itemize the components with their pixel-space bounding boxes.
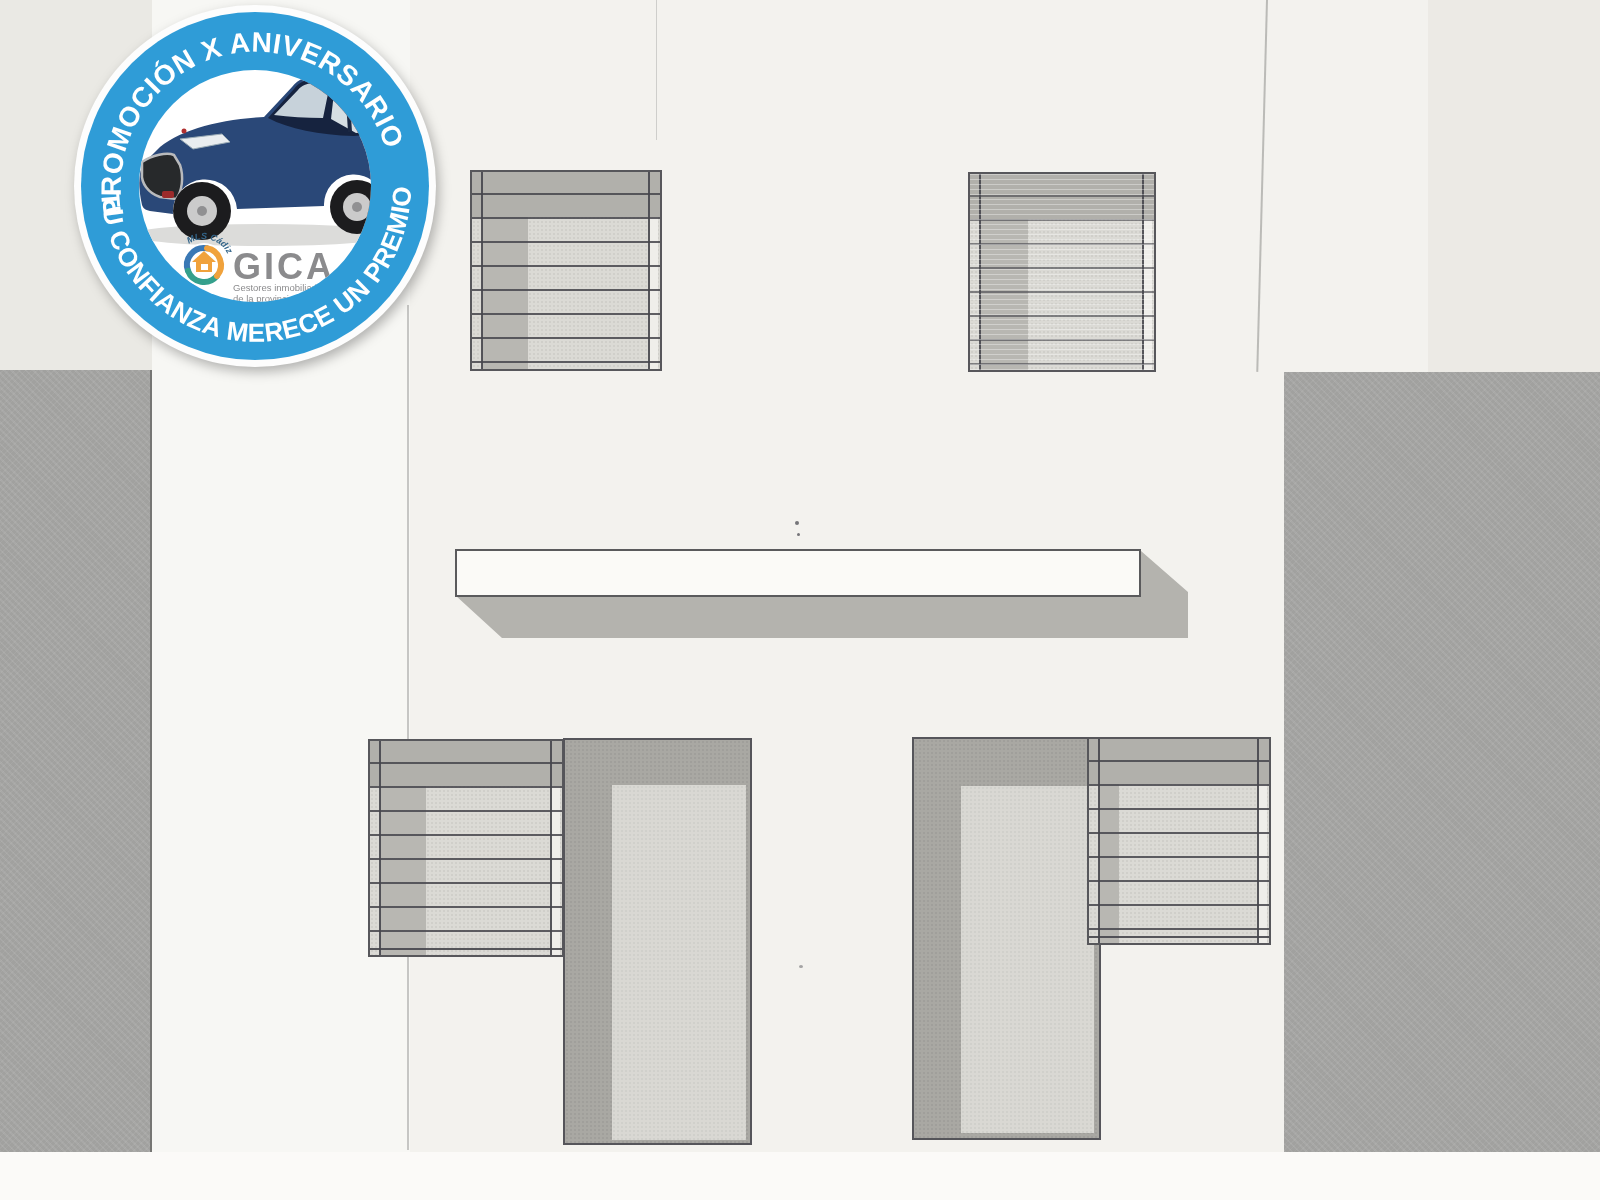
- scan-speck: [799, 965, 803, 968]
- promo-badge-svg: PROMOCIÓN X ANIVERSARIO TU CONFIANZA MER…: [72, 3, 438, 369]
- gica-logo-icon: [182, 243, 226, 287]
- shutter-rail-right: [550, 741, 552, 955]
- scanned-facade-photo: PROMOCIÓN X ANIVERSARIO TU CONFIANZA MER…: [0, 0, 1600, 1200]
- promo-badge: PROMOCIÓN X ANIVERSARIO TU CONFIANZA MER…: [72, 3, 438, 369]
- window-lower-left: [368, 739, 564, 957]
- door-lower-right: [912, 737, 1101, 1140]
- window-sill-line: [370, 948, 562, 950]
- balcony-ledge: [455, 549, 1141, 597]
- gica-wordmark: GICA: [233, 246, 335, 287]
- shutter-slats: [370, 741, 562, 955]
- door-panel: [961, 786, 1094, 1133]
- shutter-rail-left: [379, 741, 381, 955]
- shutter-slats: [1089, 739, 1269, 943]
- car-hood-badge: [182, 129, 187, 134]
- door-panel: [612, 785, 746, 1140]
- scan-speck: [795, 521, 799, 525]
- window-sill-line: [1089, 936, 1269, 938]
- gica-house-window: [201, 264, 208, 270]
- shutter-rail-right: [1257, 739, 1259, 943]
- scan-speck: [797, 533, 800, 536]
- car-red-detail: [162, 191, 174, 198]
- window-lower-right: [1087, 737, 1271, 945]
- shutter-rail-left: [1098, 739, 1100, 943]
- door-lower-left: [563, 738, 752, 1145]
